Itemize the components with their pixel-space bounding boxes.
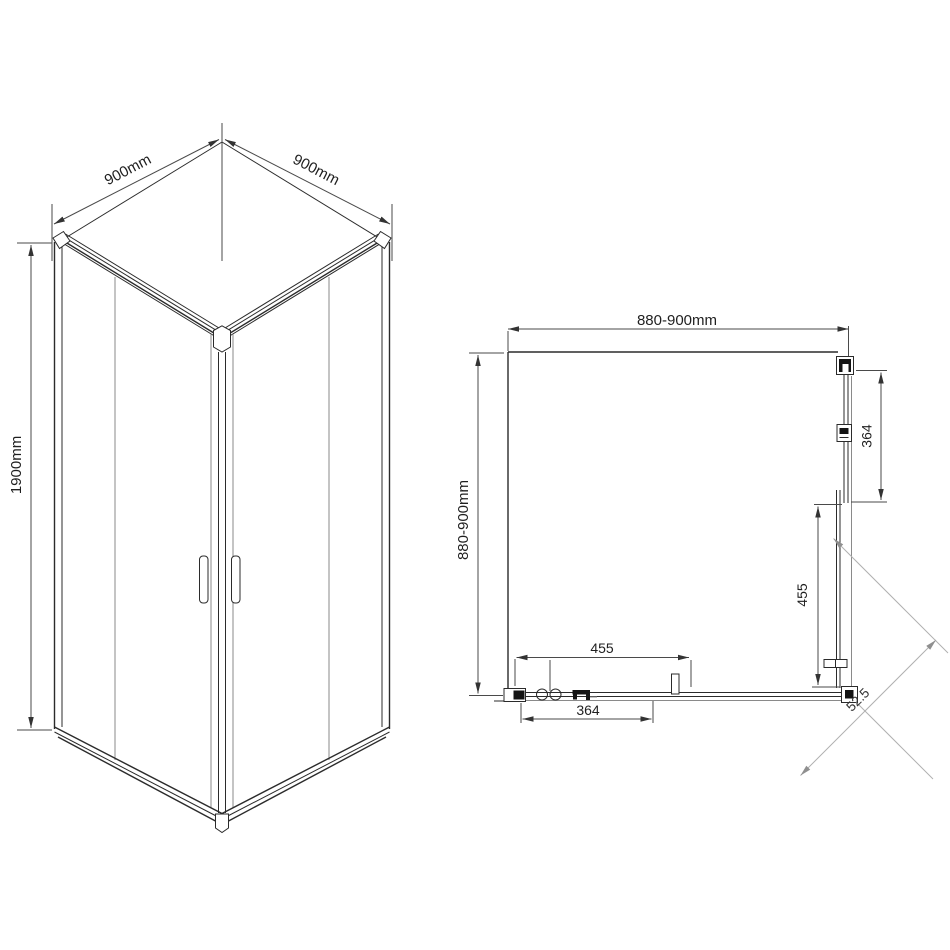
dim-label-right-door: 455 (794, 583, 810, 607)
dimension-height: 1900mm (8, 243, 52, 730)
plan-bottom-side (494, 674, 858, 703)
top-rail-left (61, 234, 226, 340)
technical-drawing-canvas: 900mm 900mm 1900mm (0, 0, 950, 950)
dim-label-bottom-door: 455 (590, 640, 614, 656)
plan-view: 880-900mm 880-900mm 364 455 (455, 312, 948, 779)
dimension-corner-diagonal: 52.5 (801, 539, 949, 780)
door-handle-left (200, 556, 209, 603)
dim-label-top-right-width: 900mm (290, 151, 342, 189)
panel-clamp-bottom (573, 690, 598, 700)
door-roller (537, 689, 548, 700)
dimension-plan-top: 880-900mm (508, 312, 849, 356)
top-rail-right (219, 234, 384, 340)
bottom-corner-foot (216, 814, 229, 833)
door-roller (550, 689, 561, 700)
door-handle-right-plan (824, 660, 847, 668)
panel-connector-right (837, 425, 852, 442)
center-corner-post (219, 352, 226, 813)
dimension-bottom-door: 455 (515, 640, 691, 691)
dim-label-bottom-fixed: 364 (576, 702, 600, 718)
wall-profile-left (55, 242, 63, 729)
dim-label-right-fixed: 364 (859, 424, 875, 448)
plan-walls (508, 352, 838, 690)
dimension-bottom-fixed: 364 (521, 701, 653, 723)
door-handle-bottom-plan (672, 674, 680, 694)
isometric-view: 900mm 900mm 1900mm (8, 123, 392, 833)
dim-label-height: 1900mm (8, 436, 25, 494)
dimension-top-widths: 900mm 900mm (52, 123, 392, 261)
dimension-plan-left: 880-900mm (455, 353, 504, 696)
dim-label-top-left-width: 900mm (102, 151, 154, 189)
dimension-right-fixed: 364 (851, 371, 887, 503)
wall-profile-right (382, 242, 390, 729)
top-corner-front (214, 326, 231, 352)
door-handle-right (232, 556, 241, 603)
bottom-frame (55, 727, 390, 833)
glass-panel-lines (115, 277, 329, 808)
plan-right-side (824, 357, 854, 689)
dim-label-plan-left: 880-900mm (455, 480, 472, 560)
dim-label-plan-top: 880-900mm (637, 312, 717, 329)
